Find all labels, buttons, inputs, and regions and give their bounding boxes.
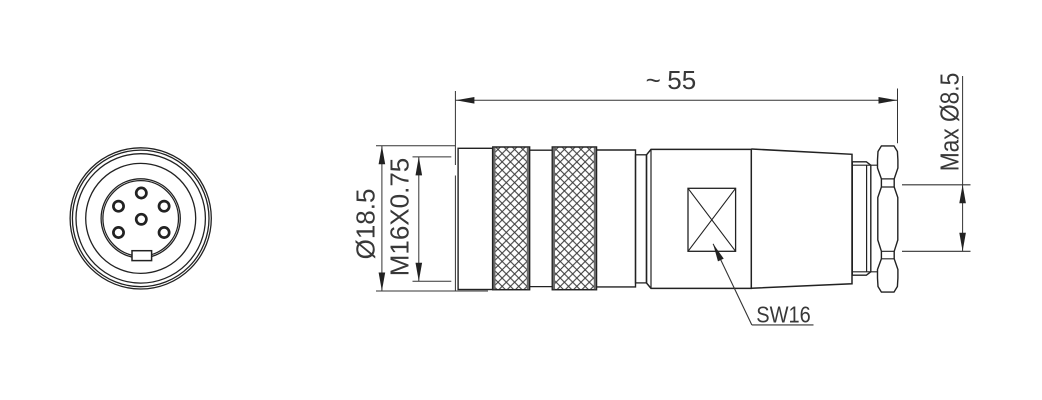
svg-text:M16X0.75: M16X0.75 xyxy=(385,158,415,277)
svg-text:~55: ~55 xyxy=(646,65,697,95)
svg-text:SW16: SW16 xyxy=(756,301,810,328)
svg-text:Ø18.5: Ø18.5 xyxy=(351,189,381,260)
svg-text:Max Ø8.5: Max Ø8.5 xyxy=(936,73,965,172)
